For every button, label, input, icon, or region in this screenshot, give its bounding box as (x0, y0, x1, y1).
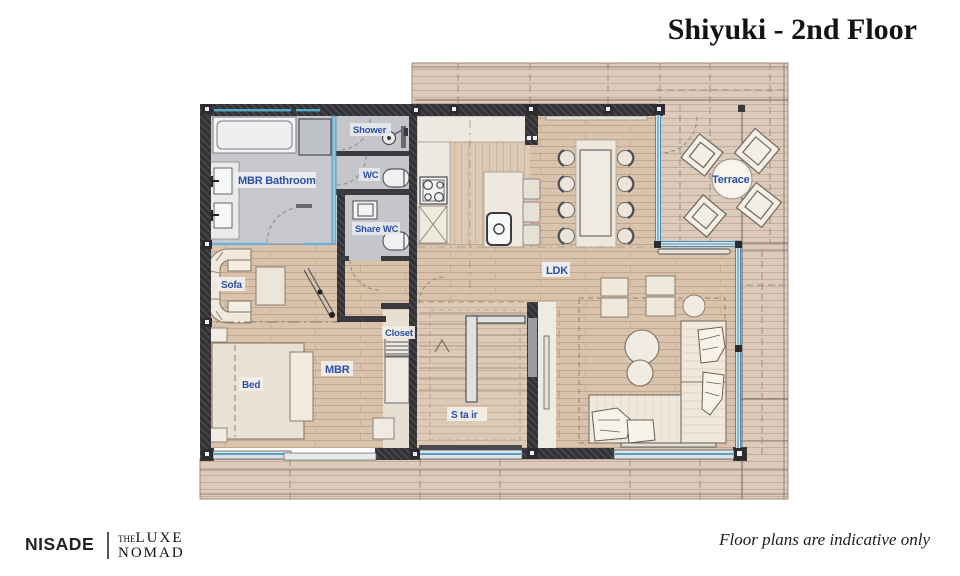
svg-text:MBR: MBR (325, 364, 350, 376)
svg-text:Shower: Shower (353, 125, 387, 136)
svg-text:Closet: Closet (385, 328, 414, 339)
svg-text:LDK: LDK (546, 265, 568, 277)
svg-text:MBR Bathroom: MBR Bathroom (238, 175, 316, 187)
svg-text:WC: WC (363, 170, 379, 181)
svg-text:S ta ir: S ta ir (451, 410, 478, 421)
svg-text:Terrace: Terrace (712, 174, 750, 186)
svg-text:Bed: Bed (242, 380, 260, 391)
svg-text:Share WC: Share WC (355, 224, 399, 235)
svg-text:Sofa: Sofa (221, 280, 243, 291)
